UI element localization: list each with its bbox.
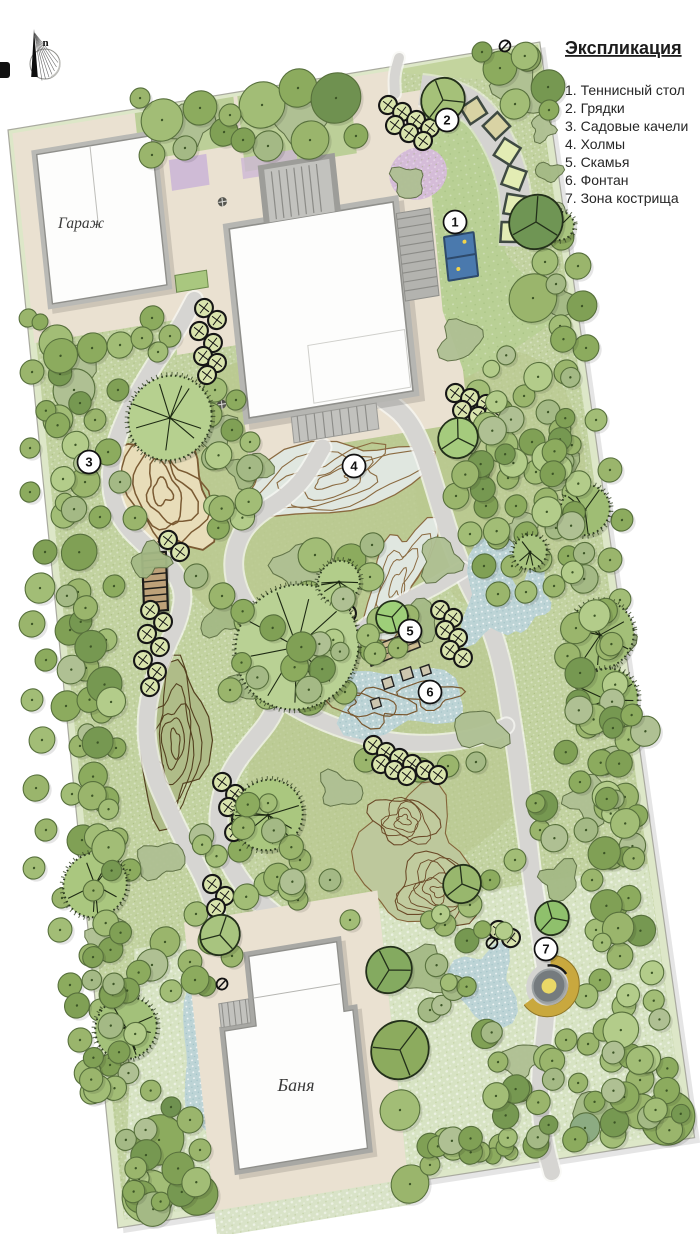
- svg-text:6. Фонтан: 6. Фонтан: [565, 172, 629, 188]
- svg-text:4. Холмы: 4. Холмы: [565, 136, 625, 152]
- svg-text:Баня: Баня: [277, 1075, 315, 1095]
- svg-text:2. Грядки: 2. Грядки: [565, 100, 625, 116]
- svg-text:3. Садовые качели: 3. Садовые качели: [565, 118, 688, 134]
- svg-text:7. Зона кострища: 7. Зона кострища: [565, 190, 679, 206]
- svg-text:5. Скамья: 5. Скамья: [565, 154, 629, 170]
- svg-text:7: 7: [542, 942, 549, 957]
- svg-text:Гараж: Гараж: [57, 215, 105, 232]
- svg-text:Экспликация: Экспликация: [565, 38, 682, 58]
- svg-text:6: 6: [426, 685, 433, 700]
- svg-text:2: 2: [443, 113, 450, 128]
- svg-text:3: 3: [85, 455, 92, 470]
- svg-text:n: n: [43, 37, 49, 49]
- svg-text:4: 4: [350, 459, 358, 474]
- svg-text:5: 5: [406, 624, 413, 639]
- svg-text:1. Теннисный стол: 1. Теннисный стол: [565, 82, 685, 98]
- svg-text:1: 1: [451, 215, 458, 230]
